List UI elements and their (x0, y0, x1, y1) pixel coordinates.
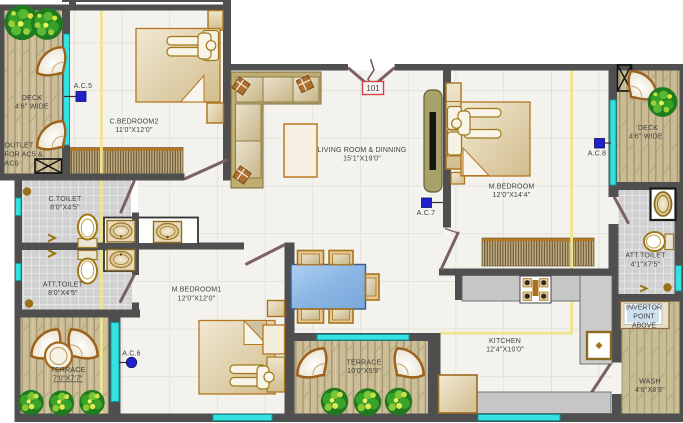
svg-text:8'0"X4'5": 8'0"X4'5" (50, 205, 80, 212)
svg-text:12'4"X10'0": 12'4"X10'0" (486, 347, 524, 354)
svg-text:M.BEDROOM1: M.BEDROOM1 (172, 287, 222, 294)
svg-text:4'6" WIDE: 4'6" WIDE (15, 104, 49, 111)
svg-text:12'0"X14'4": 12'0"X14'4" (493, 192, 531, 199)
svg-text:4'1"X7'5": 4'1"X7'5" (631, 262, 661, 269)
svg-text:DECK: DECK (638, 125, 658, 132)
svg-text:ATT.TOILET: ATT.TOILET (43, 282, 84, 289)
svg-text:ABOVE: ABOVE (632, 323, 656, 330)
svg-text:A.C.6: A.C.6 (122, 351, 141, 358)
svg-text:11'0"X12'0": 11'0"X12'0" (115, 127, 153, 134)
svg-text:A.C.8: A.C.8 (588, 151, 607, 158)
svg-text:LIVING ROOM & DINNING: LIVING ROOM & DINNING (318, 147, 407, 154)
svg-text:A.C.7: A.C.7 (417, 210, 436, 217)
svg-text:ATT.TOILET: ATT.TOILET (625, 253, 666, 260)
svg-text:10'0"X5'9": 10'0"X5'9" (347, 368, 381, 375)
svg-text:101: 101 (366, 84, 380, 93)
svg-text:POINT: POINT (633, 314, 655, 321)
svg-text:A.C.5: A.C.5 (74, 83, 93, 90)
svg-text:M.BEDROOM: M.BEDROOM (489, 184, 535, 191)
svg-text:AC6: AC6 (5, 161, 19, 168)
svg-text:KITCHEN: KITCHEN (489, 338, 521, 345)
svg-text:7'0"X7'7": 7'0"X7'7" (53, 376, 83, 383)
svg-text:INVERTOR: INVERTOR (626, 305, 662, 312)
svg-text:TERRACE: TERRACE (51, 367, 86, 374)
svg-text:WASH: WASH (639, 379, 661, 386)
svg-text:C.TOILET: C.TOILET (49, 196, 83, 203)
svg-text:C.BEDROOM2: C.BEDROOM2 (109, 119, 158, 126)
svg-text:4'6" WIDE: 4'6" WIDE (629, 134, 663, 141)
svg-text:TERRACE: TERRACE (347, 360, 382, 367)
svg-text:DECK: DECK (22, 95, 42, 102)
svg-text:15'1"X19'0": 15'1"X19'0" (343, 156, 381, 163)
svg-text:OUTLET: OUTLET (5, 143, 34, 150)
svg-text:FOR AC5 &: FOR AC5 & (5, 152, 43, 159)
svg-text:12'0"X12'0": 12'0"X12'0" (178, 296, 216, 303)
svg-text:8'0"X4'5": 8'0"X4'5" (48, 290, 78, 297)
svg-text:4'6"X8'8": 4'6"X8'8" (635, 387, 665, 394)
